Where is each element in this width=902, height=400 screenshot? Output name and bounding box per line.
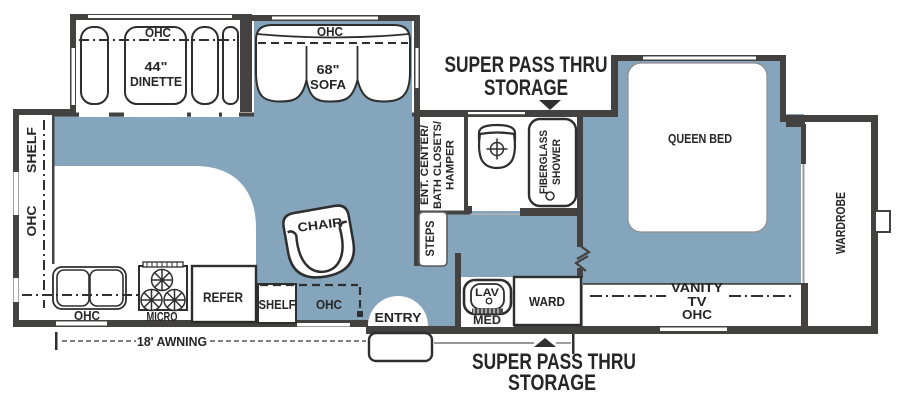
svg-text:HAMPER: HAMPER bbox=[445, 140, 457, 190]
svg-text:BATH CLOSETS/: BATH CLOSETS/ bbox=[432, 121, 444, 209]
svg-text:SHELF: SHELF bbox=[24, 127, 39, 173]
svg-text:SOFA: SOFA bbox=[310, 78, 346, 92]
svg-text:DINETTE: DINETTE bbox=[130, 75, 182, 89]
svg-text:SUPER PASS THRU: SUPER PASS THRU bbox=[445, 52, 608, 77]
svg-text:OHC: OHC bbox=[24, 205, 39, 237]
svg-text:FIBERGLASS: FIBERGLASS bbox=[538, 130, 550, 194]
svg-text:MED: MED bbox=[473, 313, 501, 327]
svg-text:18' AWNING: 18' AWNING bbox=[137, 334, 207, 349]
svg-text:STEPS: STEPS bbox=[425, 220, 437, 256]
svg-text:WARDROBE: WARDROBE bbox=[834, 192, 848, 254]
svg-text:VANITY: VANITY bbox=[671, 281, 724, 295]
svg-text:STORAGE: STORAGE bbox=[508, 370, 596, 395]
svg-text:ENT. CENTER/: ENT. CENTER/ bbox=[419, 125, 431, 205]
svg-text:68": 68" bbox=[317, 63, 340, 77]
svg-text:MICRO: MICRO bbox=[147, 310, 178, 324]
svg-text:SHELF: SHELF bbox=[259, 298, 296, 312]
svg-text:LAV: LAV bbox=[475, 287, 500, 299]
svg-text:OHC: OHC bbox=[74, 309, 100, 323]
svg-text:OHC: OHC bbox=[316, 298, 342, 312]
svg-text:44": 44" bbox=[145, 60, 168, 74]
svg-text:QUEEN BED: QUEEN BED bbox=[668, 131, 732, 146]
svg-text:SHOWER: SHOWER bbox=[551, 139, 563, 185]
svg-text:OHC: OHC bbox=[317, 25, 343, 39]
svg-text:TV: TV bbox=[688, 295, 708, 309]
svg-text:STORAGE: STORAGE bbox=[484, 75, 568, 100]
svg-text:OHC: OHC bbox=[682, 308, 712, 322]
svg-text:OHC: OHC bbox=[145, 26, 171, 40]
svg-text:ENTRY: ENTRY bbox=[375, 310, 422, 325]
svg-text:REFER: REFER bbox=[203, 289, 243, 305]
svg-text:WARD: WARD bbox=[529, 295, 565, 309]
